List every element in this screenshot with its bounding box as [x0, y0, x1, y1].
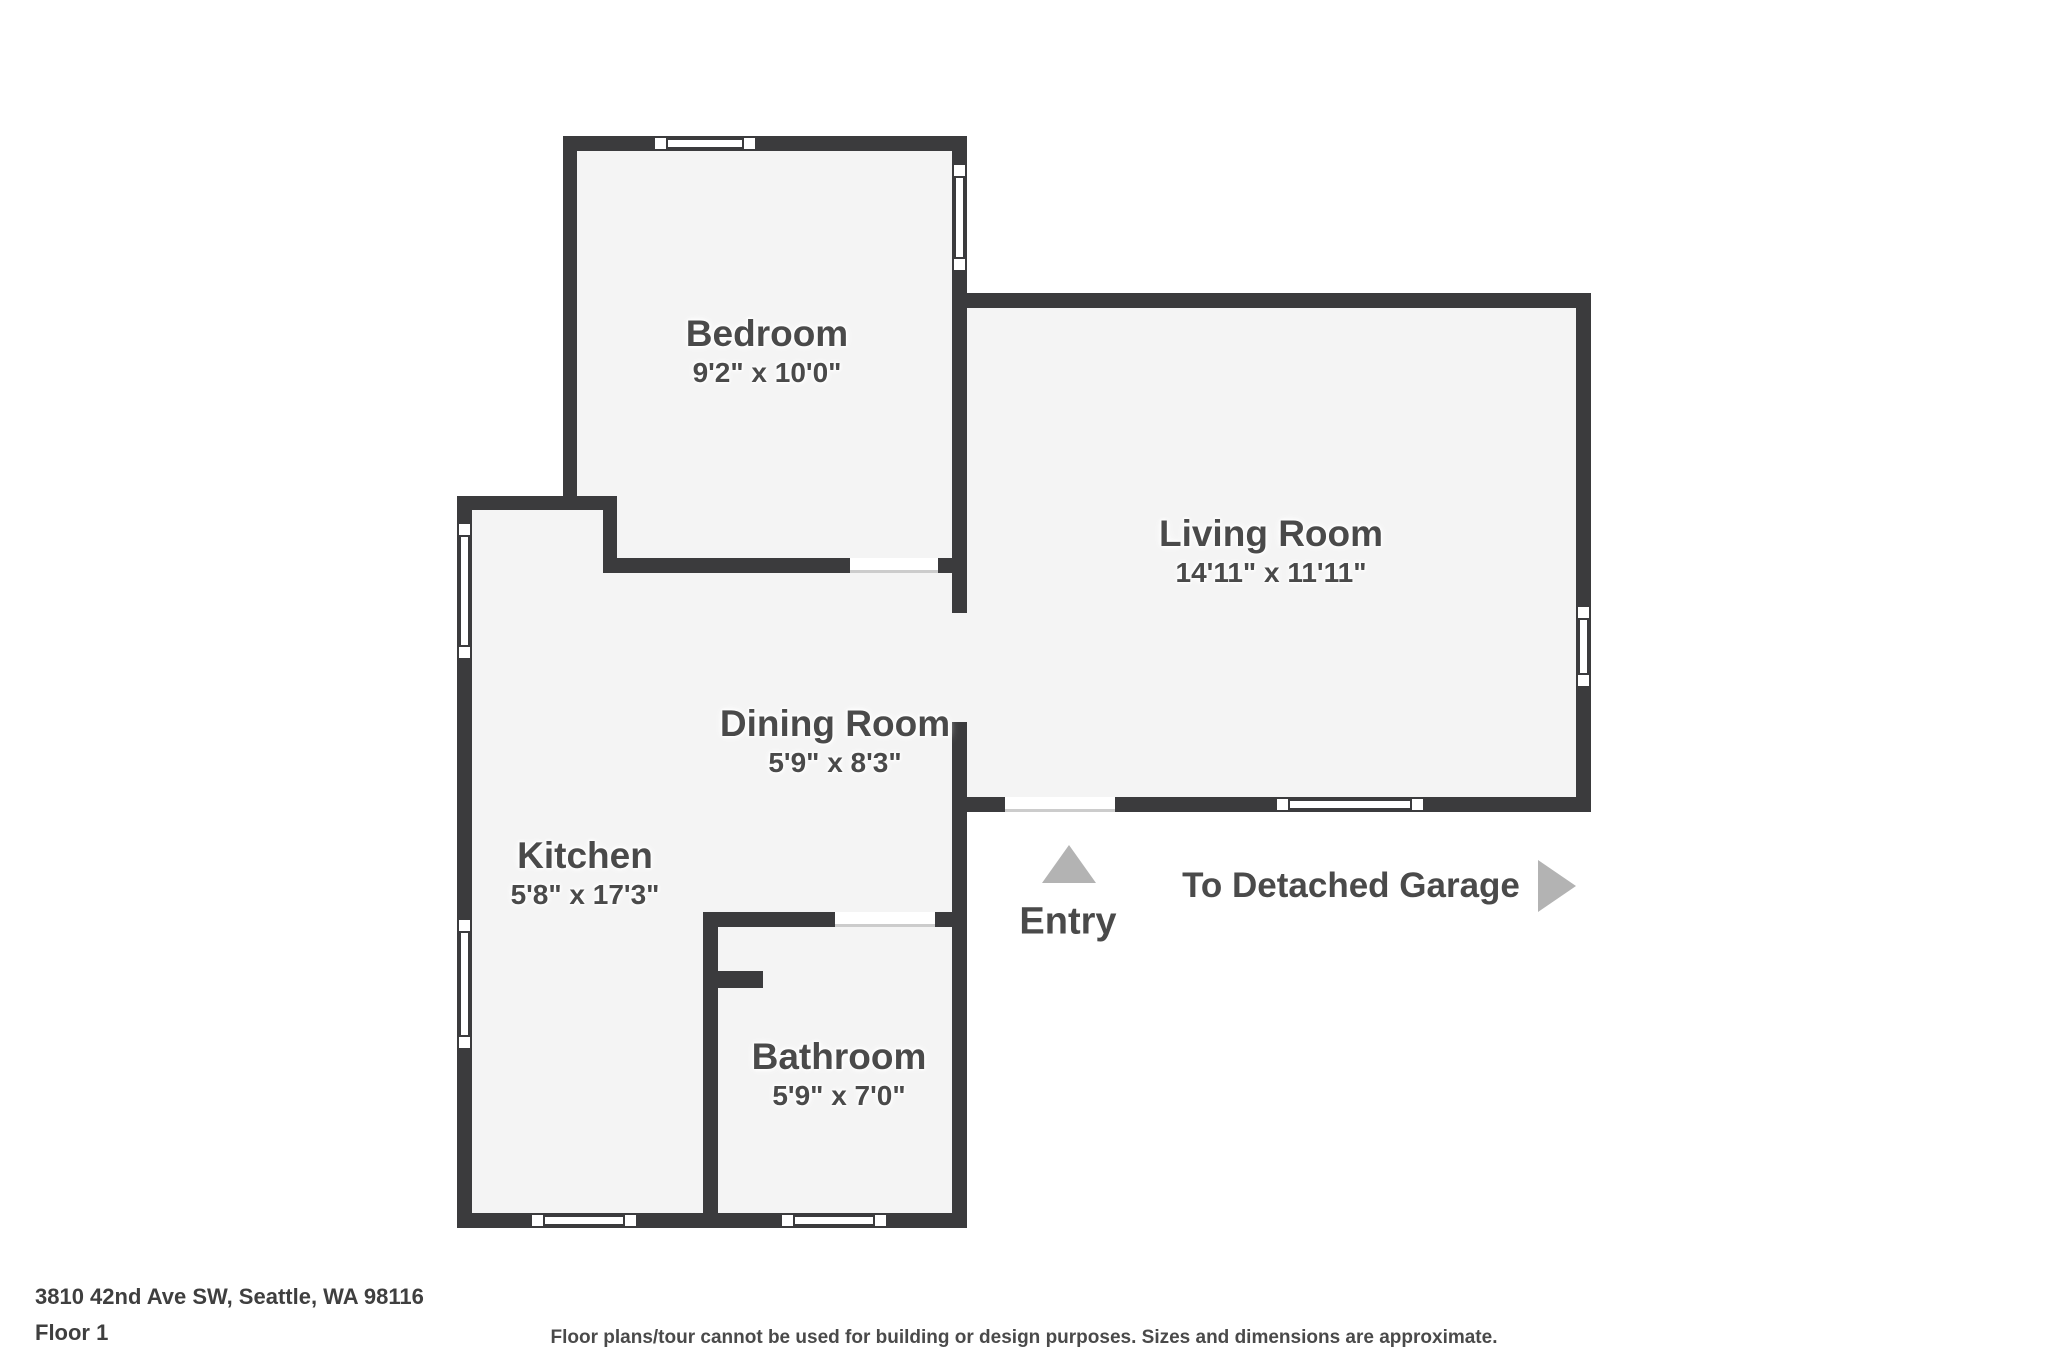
floor-number-text: Floor 1	[35, 1320, 108, 1346]
bathroom-label: Bathroom 5'9" x 7'0"	[752, 1036, 927, 1112]
dining-room-name: Dining Room	[720, 703, 950, 746]
bedroom-dimensions: 9'2" x 10'0"	[686, 355, 848, 389]
kitchen-left-lower-window	[457, 918, 472, 1050]
bedroom-name: Bedroom	[686, 313, 848, 356]
disclaimer-text: Floor plans/tour cannot be used for buil…	[551, 1327, 1498, 1349]
garage-label: To Detached Garage	[1182, 866, 1520, 906]
floor-plan-canvas: Bedroom 9'2" x 10'0" Living Room 14'11" …	[0, 0, 2048, 1365]
wall-bedroom-step	[603, 496, 617, 573]
living-bottom-window	[1275, 797, 1425, 812]
garage-right-arrow-icon	[1538, 860, 1576, 912]
bedroom-door-opening	[850, 558, 938, 573]
window-pane	[793, 1215, 875, 1226]
bathroom-dimensions: 5'9" x 7'0"	[752, 1078, 927, 1112]
window-pane	[1578, 618, 1589, 675]
wall-bedroom-left	[563, 136, 577, 510]
wall-bedroom-bottom-left	[617, 558, 850, 573]
wall-kitchen-top	[457, 496, 617, 510]
window-pane	[1288, 799, 1412, 810]
wall-living-bottom-right	[1425, 797, 1591, 812]
wall-living-top	[952, 293, 1591, 308]
wall-living-bottom-left	[952, 797, 1005, 812]
window-pane	[543, 1215, 625, 1226]
entry-triangle-icon	[1042, 845, 1096, 883]
living-room-name: Living Room	[1159, 513, 1383, 556]
address-text: 3810 42nd Ave SW, Seattle, WA 98116	[35, 1284, 424, 1310]
dining-room-label: Dining Room 5'9" x 8'3"	[720, 703, 950, 779]
wall-living-right	[1576, 293, 1591, 812]
bathroom-door-opening	[835, 912, 935, 927]
kitchen-left-upper-window	[457, 522, 472, 660]
wall-living-bottom-mid	[1115, 797, 1275, 812]
entry-door-opening	[1005, 797, 1115, 812]
wall-bathroom-left	[703, 912, 718, 1228]
bedroom-top-window	[653, 136, 757, 151]
bedroom-right-window	[952, 163, 967, 272]
window-pane	[459, 931, 470, 1037]
dining-room-dimensions: 5'9" x 8'3"	[720, 745, 950, 779]
window-pane	[954, 176, 965, 259]
window-pane	[666, 138, 744, 149]
wall-bedroom-top	[563, 136, 967, 151]
entry-label: Entry	[1019, 901, 1116, 944]
living-room-label: Living Room 14'11" x 11'11"	[1159, 513, 1383, 589]
wall-bathroom-stub	[718, 971, 763, 988]
bedroom-label: Bedroom 9'2" x 10'0"	[686, 313, 848, 389]
kitchen-bottom-window	[530, 1213, 638, 1228]
living-right-window	[1576, 605, 1591, 688]
bathroom-name: Bathroom	[752, 1036, 927, 1079]
kitchen-dimensions: 5'8" x 17'3"	[511, 877, 660, 911]
window-pane	[459, 535, 470, 647]
kitchen-name: Kitchen	[511, 835, 660, 878]
kitchen-label: Kitchen 5'8" x 17'3"	[511, 835, 660, 911]
living-room-dimensions: 14'11" x 11'11"	[1159, 555, 1383, 589]
bathroom-bottom-window	[780, 1213, 888, 1228]
